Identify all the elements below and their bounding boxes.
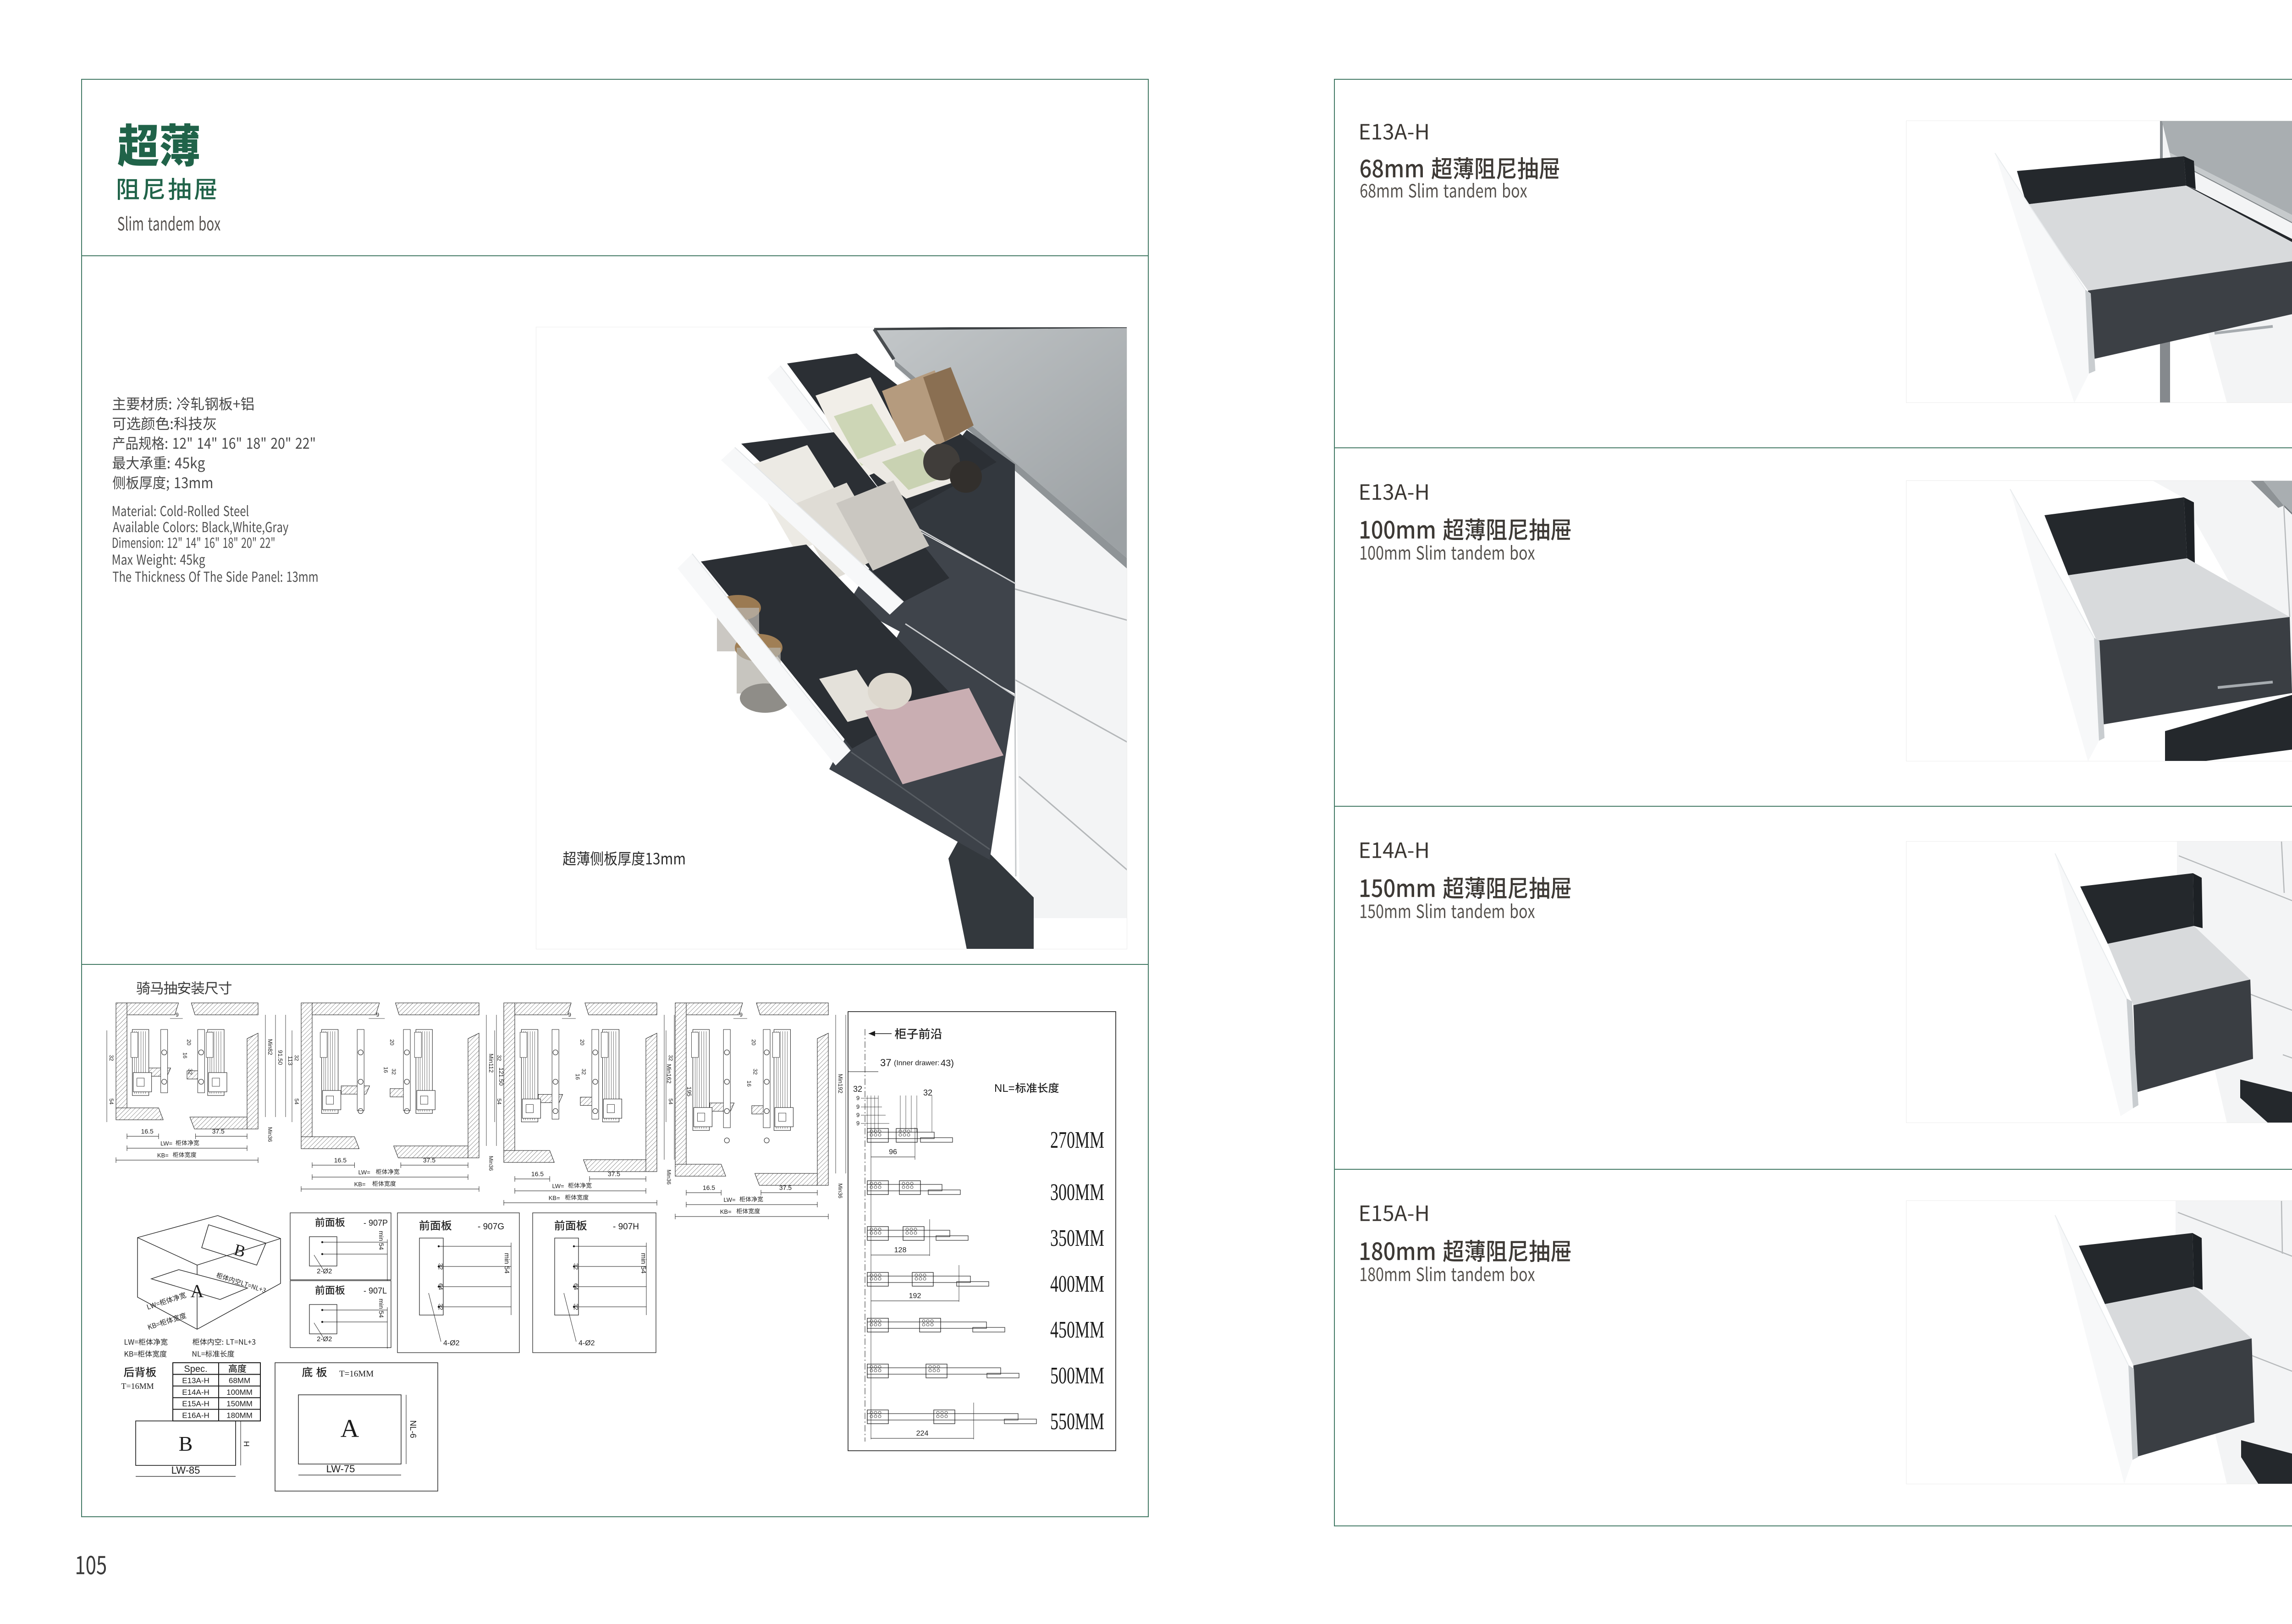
svg-text:224: 224 (916, 1430, 929, 1437)
svg-text:9: 9 (856, 1112, 859, 1118)
svg-text:300MM: 300MM (1050, 1179, 1104, 1206)
svg-text:9: 9 (856, 1095, 859, 1101)
svg-text:H: H (242, 1441, 251, 1447)
svg-text:96: 96 (889, 1148, 897, 1156)
svg-text:20: 20 (389, 1039, 395, 1046)
svg-text:E16A-H: E16A-H (182, 1411, 209, 1420)
svg-text:- 907H: - 907H (613, 1222, 639, 1232)
svg-text:16.5: 16.5 (141, 1128, 154, 1135)
svg-text:192: 192 (909, 1292, 921, 1300)
svg-text:37.5: 37.5 (779, 1184, 792, 1191)
svg-text:Min112: Min112 (488, 1054, 495, 1073)
svg-text:Min36: Min36 (837, 1184, 843, 1199)
svg-text:450MM: 450MM (1050, 1317, 1104, 1343)
svg-text:16.5: 16.5 (703, 1184, 715, 1191)
svg-text:20: 20 (750, 1039, 757, 1046)
svg-text:(Inner drawer:: (Inner drawer: (894, 1059, 940, 1067)
svg-text:A: A (191, 1281, 204, 1301)
svg-text:54: 54 (108, 1098, 115, 1105)
svg-text:195: 195 (686, 1086, 693, 1096)
svg-text:B: B (232, 1240, 248, 1261)
svg-text:54: 54 (293, 1098, 300, 1105)
svg-text:100MM: 100MM (226, 1388, 253, 1397)
svg-text:Min36: Min36 (267, 1127, 273, 1142)
svg-text:LW=: LW= (358, 1169, 370, 1176)
svg-text:64: 64 (573, 1283, 579, 1290)
svg-text:9: 9 (739, 1012, 743, 1018)
svg-text:54: 54 (496, 1098, 502, 1105)
svg-text:150MM: 150MM (226, 1399, 253, 1408)
svg-text:LW-85: LW-85 (171, 1464, 200, 1476)
svg-text:Min192: Min192 (837, 1074, 844, 1094)
svg-text:LW=: LW= (160, 1140, 172, 1147)
svg-text:68MM: 68MM (229, 1376, 250, 1385)
svg-text:37.5: 37.5 (212, 1128, 225, 1135)
svg-text:KB=: KB= (157, 1152, 169, 1159)
svg-text:Min82: Min82 (267, 1039, 274, 1055)
svg-text:B: B (179, 1432, 193, 1455)
svg-text:32: 32 (667, 1055, 674, 1061)
svg-text:NL=: NL= (994, 1082, 1015, 1095)
svg-text:37: 37 (880, 1057, 891, 1068)
svg-text:180MM: 180MM (226, 1411, 253, 1420)
svg-text:16: 16 (746, 1080, 752, 1087)
svg-text:64: 64 (437, 1283, 444, 1290)
svg-text:KB=: KB= (354, 1181, 366, 1188)
svg-text:32: 32 (391, 1068, 397, 1075)
svg-text:32: 32 (187, 1068, 193, 1075)
svg-text:9: 9 (176, 1012, 179, 1018)
svg-text:- 907P: - 907P (364, 1218, 388, 1228)
svg-text:16: 16 (383, 1067, 389, 1073)
svg-text:32: 32 (573, 1304, 579, 1310)
svg-text:9: 9 (856, 1120, 859, 1127)
svg-text:A: A (341, 1415, 359, 1443)
svg-text:Min162: Min162 (666, 1064, 672, 1084)
svg-text:E13A-H: E13A-H (182, 1376, 209, 1385)
svg-text:E14A-H: E14A-H (182, 1388, 209, 1397)
svg-text:E15A-H: E15A-H (182, 1399, 209, 1408)
svg-text:37.5: 37.5 (423, 1156, 435, 1164)
svg-text:16: 16 (182, 1052, 188, 1059)
svg-text:KB=: KB= (720, 1208, 732, 1215)
svg-text:16.5: 16.5 (334, 1156, 347, 1164)
svg-text:32: 32 (108, 1055, 115, 1061)
svg-text:128: 128 (894, 1246, 907, 1254)
svg-text:min 54: min 54 (503, 1253, 511, 1273)
svg-text:LW=: LW= (723, 1196, 735, 1203)
svg-text:Min36: Min36 (666, 1170, 672, 1185)
svg-text:2-Ø2: 2-Ø2 (317, 1267, 332, 1275)
svg-text:20: 20 (579, 1039, 585, 1046)
svg-text:32: 32 (580, 1068, 587, 1075)
svg-text:500MM: 500MM (1050, 1363, 1104, 1389)
svg-text:16: 16 (574, 1073, 581, 1080)
svg-text:43): 43) (941, 1058, 954, 1068)
svg-text:LW=: LW= (552, 1183, 564, 1189)
svg-text:32: 32 (293, 1055, 300, 1061)
svg-text:4-Ø2: 4-Ø2 (443, 1339, 460, 1347)
svg-text:32: 32 (923, 1088, 932, 1097)
svg-text:4-Ø2: 4-Ø2 (579, 1339, 595, 1347)
svg-text:NL-6: NL-6 (408, 1420, 418, 1438)
svg-text:91.50: 91.50 (277, 1050, 284, 1065)
svg-text:T=16MM: T=16MM (339, 1369, 374, 1379)
svg-text:9: 9 (856, 1103, 859, 1110)
svg-text:550MM: 550MM (1050, 1409, 1104, 1435)
svg-text:9: 9 (376, 1012, 379, 1018)
svg-text:350MM: 350MM (1050, 1225, 1104, 1251)
svg-text:37.5: 37.5 (608, 1170, 620, 1178)
svg-text:32: 32 (853, 1085, 862, 1094)
svg-text:32: 32 (437, 1263, 444, 1270)
svg-text:min 54: min 54 (639, 1253, 647, 1273)
svg-text:270MM: 270MM (1050, 1127, 1104, 1153)
svg-text:9: 9 (568, 1012, 571, 1018)
svg-text:- 907G: - 907G (478, 1222, 504, 1232)
svg-text:Spec.: Spec. (184, 1364, 207, 1374)
svg-text:113: 113 (287, 1056, 294, 1066)
svg-text:32: 32 (496, 1055, 502, 1061)
svg-text:LW-75: LW-75 (326, 1463, 355, 1475)
svg-text:32: 32 (573, 1263, 579, 1270)
svg-text:32: 32 (437, 1304, 444, 1310)
svg-text:20: 20 (186, 1039, 192, 1046)
svg-text:Min36: Min36 (488, 1156, 494, 1171)
svg-text:16.5: 16.5 (531, 1170, 544, 1178)
svg-text:T=16MM: T=16MM (121, 1382, 154, 1391)
svg-text:- 907L: - 907L (364, 1286, 387, 1295)
svg-text:400MM: 400MM (1050, 1271, 1104, 1297)
svg-text:KB=: KB= (549, 1195, 560, 1201)
svg-text:min 54: min 54 (378, 1231, 385, 1250)
svg-text:32: 32 (752, 1068, 758, 1075)
svg-text:min 54: min 54 (378, 1299, 385, 1318)
svg-text:2-Ø2: 2-Ø2 (317, 1335, 332, 1343)
svg-text:54: 54 (667, 1098, 674, 1105)
